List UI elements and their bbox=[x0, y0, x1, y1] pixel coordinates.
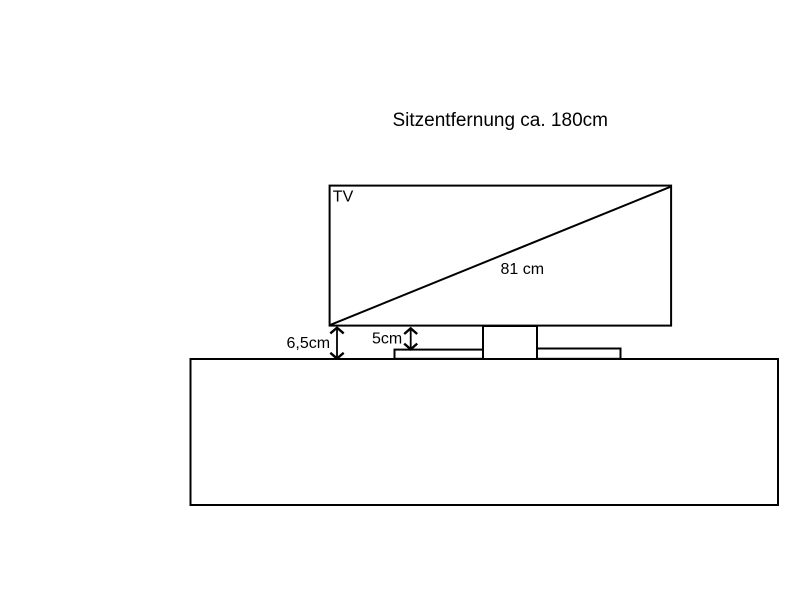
svg-text:Sitzentfernung ca. 180cm: Sitzentfernung ca. 180cm bbox=[393, 110, 608, 131]
svg-text:5cm: 5cm bbox=[372, 331, 402, 348]
svg-text:81 cm: 81 cm bbox=[501, 261, 545, 278]
svg-text:6,5cm: 6,5cm bbox=[287, 335, 331, 352]
svg-text:TV: TV bbox=[333, 189, 354, 206]
